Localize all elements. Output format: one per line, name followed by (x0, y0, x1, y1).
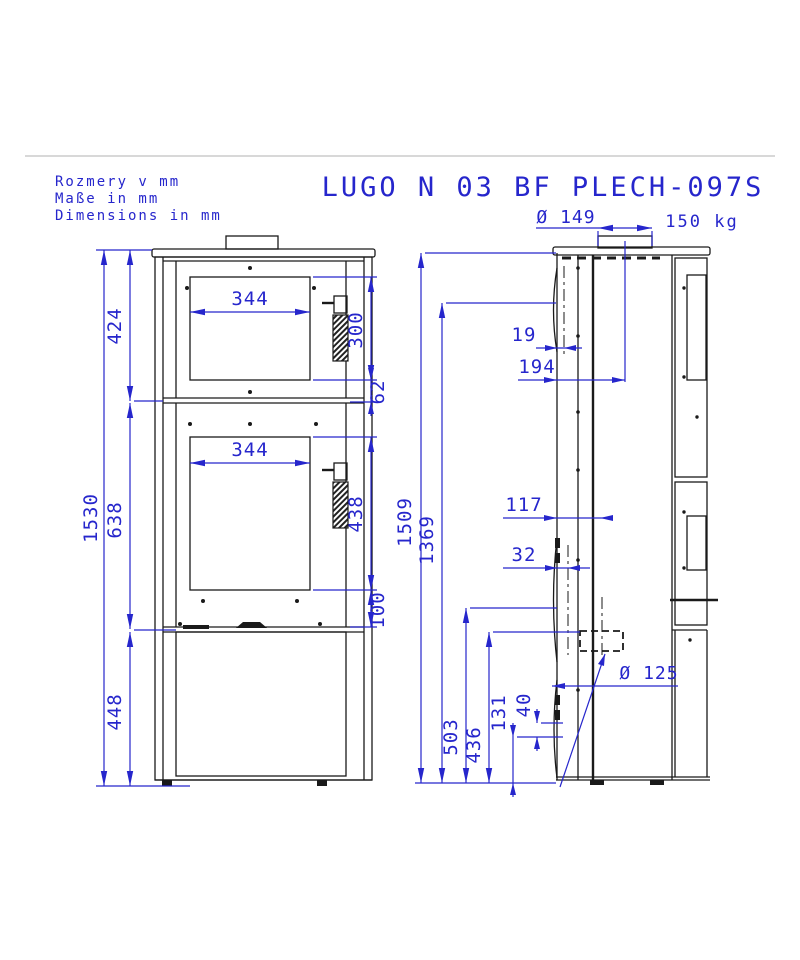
side-view (553, 236, 718, 785)
front-view (152, 236, 375, 786)
drawing-title: LUGO N 03 BF PLECH-097S (322, 172, 765, 203)
dim-label-436: 436 (463, 726, 485, 763)
dim-label-62: 62 (367, 380, 389, 405)
dim-lower-window-width: 344 (190, 439, 310, 463)
flue-collar-front (226, 236, 278, 249)
dim-rear-outlet-from-front: 117 (503, 494, 613, 521)
dim-label-32: 32 (512, 544, 537, 566)
dim-flue-axis-from-front: 194 (518, 356, 625, 383)
dim-upper-window-width: 344 (190, 288, 310, 312)
screw-dots-side (576, 266, 699, 692)
technical-drawing: Rozmery v mm Maße in mm Dimensions in mm… (0, 0, 800, 960)
note-line-3: Dimensions in mm (55, 208, 222, 224)
dim-label-117: 117 (505, 494, 542, 516)
dim-lower-window-height: 438 (313, 437, 377, 590)
dimensions-side-view: Ø 149 1509 1369 19 194 1 (394, 207, 679, 797)
header: Rozmery v mm Maße in mm Dimensions in mm… (55, 172, 764, 232)
dim-label-19: 19 (512, 324, 537, 346)
dim-overall-height: 1530 (80, 250, 190, 786)
side-foot-rear (650, 780, 664, 785)
dim-top-to-divider: 424 (104, 250, 163, 401)
dim-label-424: 424 (104, 307, 126, 344)
dim-label-1369: 1369 (416, 515, 438, 565)
drawing-page: Rozmery v mm Maße in mm Dimensions in mm… (0, 0, 800, 960)
dim-label-194: 194 (518, 356, 555, 378)
wood-compartment-door (176, 632, 346, 776)
top-plate-front (152, 249, 375, 257)
dim-label-131: 131 (488, 694, 510, 731)
dim-top-flue-diameter: Ø 149 (536, 207, 652, 246)
right-foot (317, 780, 327, 786)
dim-label-40: 40 (513, 693, 535, 718)
rear-shield-lower (675, 482, 707, 625)
rear-recess-lower (687, 516, 706, 570)
dim-label-300: 300 (345, 311, 367, 348)
dim-window-to-divider: 62 (350, 366, 389, 416)
dim-label-1530: 1530 (80, 493, 102, 543)
dim-label-1509: 1509 (394, 497, 416, 547)
dim-label-438: 438 (345, 495, 367, 532)
rear-shield-upper (675, 258, 707, 477)
left-foot (162, 780, 172, 786)
rear-recess-upper (687, 275, 706, 380)
dim-label-d149: Ø 149 (536, 207, 595, 228)
dim-middle-section: 638 (104, 403, 176, 630)
dim-upper-window-height: 300 (313, 277, 377, 380)
dim-label-638: 638 (104, 501, 126, 538)
dim-slot-depth: 32 (503, 544, 590, 571)
door-latch (236, 622, 267, 628)
dim-base-compartment: 448 (104, 632, 130, 786)
dim-label-100: 100 (367, 591, 389, 628)
dim-label-448: 448 (104, 693, 126, 730)
dim-label-344-lower: 344 (231, 439, 268, 461)
weight-label: 150 kg (665, 212, 738, 232)
ash-lip (183, 625, 209, 629)
dim-window-to-door-bottom: 100 (350, 590, 389, 629)
side-foot-front (590, 780, 604, 785)
dim-label-d125: Ø 125 (619, 663, 678, 684)
note-line-2: Maße in mm (55, 191, 159, 207)
dim-label-503: 503 (440, 718, 462, 755)
note-line-1: Rozmery v mm (55, 174, 180, 190)
dim-door-bulge: 19 (512, 324, 582, 351)
dim-label-344-upper: 344 (231, 288, 268, 310)
dim-rear-flue-diameter: Ø 125 (552, 654, 679, 787)
